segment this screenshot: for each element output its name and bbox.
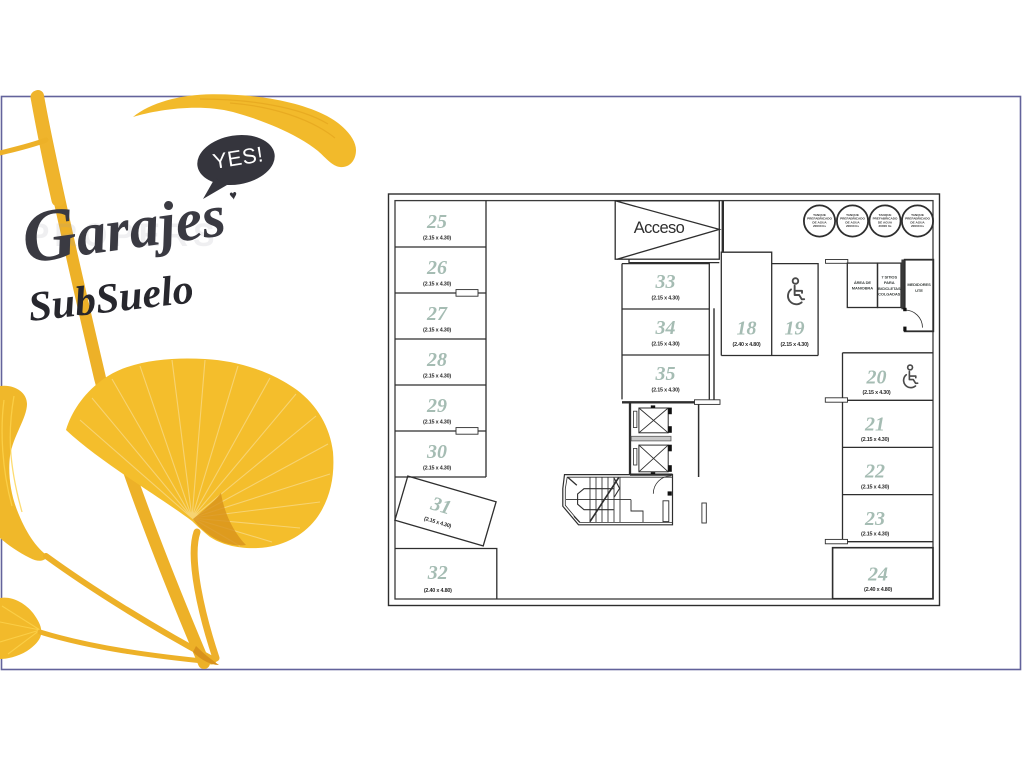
svg-text:(2.15 x 4.30): (2.15 x 4.30) — [652, 388, 680, 394]
svg-text:35: 35 — [655, 363, 676, 385]
svg-text:32: 32 — [427, 562, 448, 584]
svg-text:COLGADAS: COLGADAS — [878, 291, 901, 296]
svg-text:(2.15 x 4.30): (2.15 x 4.30) — [652, 296, 680, 302]
svg-text:23: 23 — [864, 508, 885, 530]
svg-text:(2.40 x 4.80): (2.40 x 4.80) — [864, 587, 892, 593]
svg-text:21: 21 — [864, 414, 885, 436]
svg-text:(2.15 x 4.30): (2.15 x 4.30) — [423, 328, 451, 334]
svg-text:(2.15 x 4.30): (2.15 x 4.30) — [423, 374, 451, 380]
svg-text:20: 20 — [866, 367, 887, 389]
svg-text:(2.15 x 4.30): (2.15 x 4.30) — [861, 437, 889, 443]
svg-text:(2.15 x 4.30): (2.15 x 4.30) — [781, 342, 809, 348]
svg-text:(2.40 x 4.80): (2.40 x 4.80) — [424, 588, 452, 594]
svg-text:18: 18 — [737, 318, 757, 340]
svg-text:25: 25 — [426, 211, 447, 233]
svg-text:MEDIDORES: MEDIDORES — [907, 282, 931, 287]
svg-text:(2.15 x 4.30): (2.15 x 4.30) — [863, 390, 891, 396]
svg-text:Acceso: Acceso — [634, 219, 685, 237]
svg-text:20000 lts: 20000 lts — [846, 224, 859, 228]
svg-text:20000 lts: 20000 lts — [878, 224, 891, 228]
svg-text:(2.15 x 4.30): (2.15 x 4.30) — [652, 342, 680, 348]
svg-text:24: 24 — [867, 564, 888, 586]
svg-text:34: 34 — [655, 317, 676, 339]
svg-text:ÁREA DE: ÁREA DE — [854, 280, 872, 285]
svg-text:19: 19 — [785, 318, 805, 340]
svg-text:28: 28 — [426, 349, 447, 371]
svg-text:20000 lts: 20000 lts — [911, 224, 924, 228]
svg-text:30: 30 — [426, 441, 447, 463]
svg-text:(2.15 x 4.30): (2.15 x 4.30) — [861, 484, 889, 490]
svg-text:(2.40 x 4.80): (2.40 x 4.80) — [733, 342, 761, 348]
svg-text:33: 33 — [655, 271, 676, 293]
svg-text:29: 29 — [426, 395, 447, 417]
svg-text:7 SITIOS: 7 SITIOS — [881, 275, 897, 280]
svg-text:(2.15 x 4.30): (2.15 x 4.30) — [861, 532, 889, 538]
svg-text:(2.15 x 4.30): (2.15 x 4.30) — [423, 420, 451, 426]
svg-text:27: 27 — [426, 303, 448, 325]
svg-text:MANIOBRA: MANIOBRA — [852, 286, 873, 291]
svg-text:(2.15 x 4.30): (2.15 x 4.30) — [423, 236, 451, 242]
svg-text:20000 lts: 20000 lts — [813, 224, 826, 228]
svg-text:26: 26 — [426, 257, 447, 279]
svg-text:(2.15 x 4.30): (2.15 x 4.30) — [423, 466, 451, 472]
svg-text:(2.15 x 4.30): (2.15 x 4.30) — [423, 282, 451, 288]
svg-text:BICICLETAS: BICICLETAS — [878, 286, 901, 291]
svg-text:22: 22 — [864, 461, 885, 483]
svg-text:UTE: UTE — [915, 288, 923, 293]
svg-text:PARA: PARA — [884, 280, 895, 285]
